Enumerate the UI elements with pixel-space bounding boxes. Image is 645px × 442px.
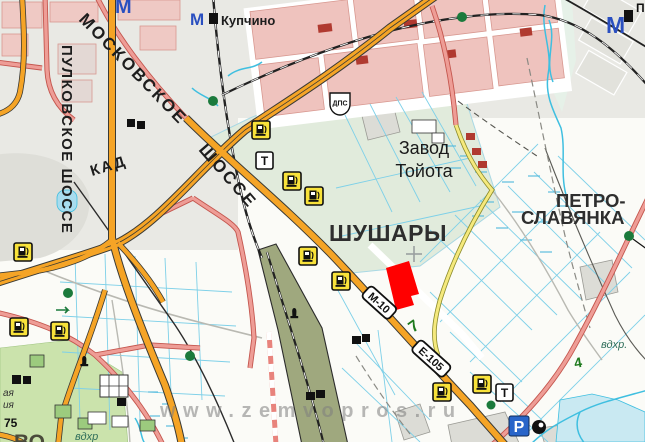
gas-station-icon	[14, 243, 32, 261]
gas-station-icon	[10, 318, 28, 336]
label-zavod-1: Завод	[399, 138, 450, 158]
gas-station-icon	[252, 121, 270, 139]
label-partial-p: П	[636, 1, 645, 15]
gas-station-icon	[299, 247, 317, 265]
metro-icon: М	[190, 10, 204, 29]
car-service-icon: Т	[496, 384, 513, 401]
label-75: 75	[4, 416, 18, 430]
label-shushary: ШУШАРЫ	[329, 220, 447, 246]
svg-text:Р: Р	[514, 419, 525, 436]
topographic-map[interactable]: Т Т Р ДПС	[0, 0, 645, 442]
landmark-icon	[532, 420, 546, 434]
watermark: www.zemvopros.ru	[159, 400, 463, 422]
svg-text:ДПС: ДПС	[332, 101, 347, 108]
label-street-iya: ия	[3, 400, 15, 411]
gas-station-icon	[305, 187, 323, 205]
label-kupchino: Купчино	[221, 13, 275, 28]
map-canvas[interactable]: Т Т Р ДПС	[0, 0, 645, 442]
metro-icon: М	[115, 0, 132, 18]
svg-text:Т: Т	[261, 154, 269, 168]
label-vdhr-bottom: вдхр	[75, 431, 98, 442]
label-street-aya: ая	[3, 388, 15, 399]
gas-station-icon	[283, 172, 301, 190]
parking-icon: Р	[509, 416, 529, 436]
svg-text:Т: Т	[501, 386, 509, 400]
gas-station-icon	[433, 383, 451, 401]
gas-station-icon	[332, 272, 350, 290]
car-service-icon: Т	[256, 152, 273, 169]
metro-icon: М	[606, 12, 625, 38]
label-zavod-2: Тойота	[395, 161, 453, 181]
label-partial-place: ВО	[14, 431, 45, 442]
gas-station-icon	[51, 322, 69, 340]
police-post-badge: ДПС	[330, 93, 350, 115]
label-petro-2: СЛАВЯНКА	[521, 207, 624, 228]
label-pulkovskoe: ПУЛКОВСКОЕ ШОССЕ	[58, 45, 75, 234]
gas-station-icon	[473, 375, 491, 393]
label-vdhr-right: вдхр.	[601, 339, 627, 351]
